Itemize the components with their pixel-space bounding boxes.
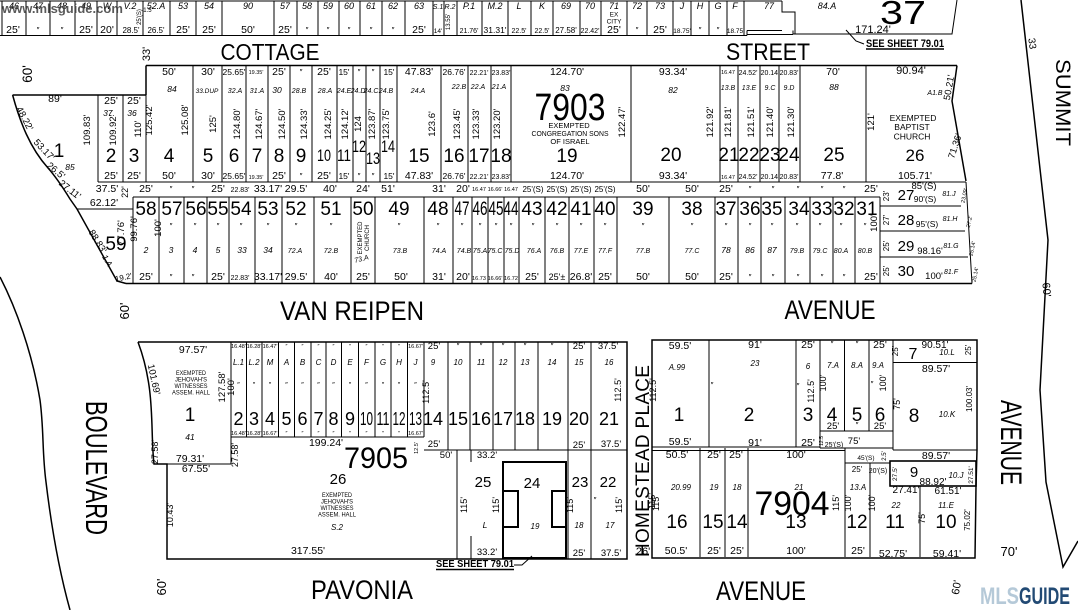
- svg-text:25': 25': [211, 271, 225, 283]
- svg-text:110': 110': [133, 120, 144, 137]
- svg-text:60': 60': [117, 303, 132, 320]
- svg-text:″: ″: [604, 222, 607, 231]
- svg-text:″: ″: [318, 344, 320, 350]
- svg-text:25': 25': [801, 339, 815, 351]
- svg-text:33.17': 33.17': [254, 271, 282, 283]
- svg-text:22: 22: [600, 474, 617, 491]
- svg-text:53: 53: [178, 1, 188, 11]
- svg-text:59.5': 59.5': [669, 340, 691, 352]
- svg-text:25': 25': [964, 344, 973, 355]
- svg-text:56: 56: [185, 199, 206, 220]
- svg-text:27.51': 27.51': [968, 466, 975, 484]
- svg-text:61.51': 61.51': [935, 486, 962, 497]
- svg-text:25': 25': [882, 265, 891, 276]
- svg-text:9.C: 9.C: [765, 85, 777, 92]
- svg-text:11: 11: [885, 512, 905, 533]
- svg-text:″: ″: [306, 26, 309, 35]
- svg-text:84: 84: [167, 84, 177, 94]
- svg-text:91': 91': [748, 437, 762, 449]
- svg-text:15': 15': [383, 67, 394, 77]
- svg-text:AVENUE: AVENUE: [716, 576, 806, 606]
- svg-text:16.66': 16.66': [488, 187, 503, 193]
- svg-text:25'±: 25'±: [549, 272, 566, 282]
- svg-text:115': 115': [651, 495, 661, 511]
- svg-text:25': 25': [882, 240, 891, 251]
- svg-text:G: G: [380, 358, 386, 367]
- svg-text:13: 13: [409, 409, 422, 429]
- svg-text:25': 25': [428, 341, 441, 352]
- svg-text:33: 33: [237, 245, 247, 255]
- svg-text:″: ″: [524, 342, 527, 351]
- svg-text:EXEMPTED: EXEMPTED: [358, 221, 364, 255]
- svg-text:30: 30: [272, 85, 282, 95]
- svg-text:48: 48: [427, 199, 448, 220]
- svg-text:1: 1: [54, 141, 65, 162]
- svg-text:54: 54: [204, 1, 214, 11]
- svg-text:″: ″: [358, 68, 361, 77]
- svg-text:3: 3: [803, 405, 814, 426]
- svg-text:18: 18: [575, 521, 584, 530]
- svg-text:J: J: [679, 1, 685, 11]
- svg-text:38: 38: [681, 199, 702, 220]
- svg-text:37.5': 37.5': [601, 548, 621, 559]
- svg-text:80.B: 80.B: [858, 248, 873, 255]
- svg-text:″: ″: [300, 68, 303, 77]
- svg-text:40': 40': [324, 271, 338, 283]
- svg-text:SUMMIT: SUMMIT: [1051, 59, 1074, 146]
- svg-text:199.24': 199.24': [309, 437, 343, 449]
- svg-text:20': 20': [456, 183, 470, 195]
- svg-text:23': 23': [882, 190, 891, 201]
- svg-text:18: 18: [733, 483, 742, 492]
- svg-text:24.A: 24.A: [410, 88, 426, 95]
- svg-text:29: 29: [898, 238, 915, 255]
- svg-text:EXEMPTED: EXEMPTED: [176, 371, 207, 377]
- svg-text:13.E: 13.E: [742, 85, 757, 92]
- svg-text:28.A: 28.A: [317, 88, 333, 95]
- svg-text:25': 25': [272, 66, 286, 78]
- svg-text:16.48': 16.48': [231, 344, 246, 350]
- svg-text:112.5': 112.5': [648, 378, 658, 402]
- svg-text:″: ″: [192, 273, 195, 282]
- svg-text:43: 43: [521, 199, 542, 220]
- svg-text:12.5: 12.5: [819, 436, 825, 446]
- svg-text:AVENUE: AVENUE: [994, 400, 1027, 485]
- svg-text:VAN REIPEN: VAN REIPEN: [280, 296, 424, 326]
- svg-text:20.14': 20.14': [761, 174, 780, 181]
- svg-text:JEHOVAH'S: JEHOVAH'S: [321, 500, 353, 506]
- svg-text:2.5': 2.5': [882, 451, 888, 461]
- svg-text:″: ″: [691, 222, 694, 231]
- svg-text:16: 16: [443, 146, 464, 167]
- svg-text:″: ″: [797, 382, 800, 391]
- svg-text:A: A: [283, 358, 289, 367]
- svg-text:86: 86: [745, 245, 755, 255]
- svg-text:″: ″: [349, 431, 351, 437]
- svg-text:74.B: 74.B: [457, 248, 472, 255]
- svg-text:24: 24: [778, 145, 800, 166]
- svg-text:33: 33: [1025, 37, 1038, 50]
- svg-text:15: 15: [702, 512, 723, 533]
- svg-text:85: 85: [65, 162, 75, 172]
- svg-text:125.08': 125.08': [180, 104, 191, 135]
- svg-text:124.70': 124.70': [550, 170, 584, 182]
- svg-text:70': 70': [826, 66, 840, 78]
- svg-text:115': 115': [491, 497, 501, 513]
- svg-text:124.67': 124.67': [254, 108, 265, 139]
- svg-text:25'(S): 25'(S): [137, 9, 143, 25]
- svg-text:26: 26: [330, 471, 347, 488]
- svg-text:17: 17: [468, 146, 489, 167]
- svg-text:20'(S): 20'(S): [869, 468, 887, 475]
- svg-text:25': 25': [525, 271, 539, 283]
- svg-text:33.DUP: 33.DUP: [196, 88, 219, 95]
- svg-text:25': 25': [104, 170, 118, 182]
- svg-text:30: 30: [898, 263, 915, 280]
- svg-text:″: ″: [382, 344, 384, 350]
- svg-text:″: ″: [398, 431, 400, 437]
- svg-text:P.1: P.1: [463, 1, 475, 11]
- svg-text:15: 15: [448, 409, 468, 429]
- svg-text:″: ″: [642, 222, 645, 231]
- svg-text:100': 100': [867, 494, 877, 511]
- svg-text:16.72: 16.72: [504, 276, 518, 282]
- svg-text:7.A: 7.A: [827, 361, 839, 370]
- svg-text:22.A: 22.A: [470, 84, 486, 91]
- svg-text:″: ″: [725, 222, 728, 231]
- svg-text:99.76': 99.76': [129, 216, 140, 242]
- svg-text:123.33': 123.33': [471, 108, 482, 139]
- svg-text:25': 25': [598, 271, 612, 283]
- svg-text:5: 5: [216, 245, 221, 255]
- svg-text:4: 4: [265, 409, 275, 429]
- svg-text:124.50': 124.50': [277, 108, 288, 139]
- svg-text:71: 71: [609, 1, 619, 11]
- svg-text:22.83': 22.83': [231, 187, 250, 194]
- svg-text:23.83': 23.83': [492, 70, 511, 77]
- svg-text:B: B: [300, 358, 306, 367]
- svg-text:L.2: L.2: [248, 358, 260, 367]
- svg-text:K: K: [539, 1, 546, 11]
- svg-text:3: 3: [169, 245, 174, 255]
- svg-text:28.B: 28.B: [291, 88, 307, 95]
- svg-text:59.41': 59.41': [933, 548, 961, 560]
- svg-text:77.B: 77.B: [636, 248, 651, 255]
- svg-text:31': 31': [432, 183, 446, 195]
- svg-text:9: 9: [431, 358, 436, 367]
- svg-text:18.75': 18.75': [673, 28, 691, 35]
- svg-text:16.28': 16.28': [247, 431, 262, 437]
- svg-text:″: ″: [856, 421, 859, 430]
- svg-text:20: 20: [569, 409, 589, 429]
- svg-text:″: ″: [327, 26, 330, 35]
- svg-text:H: H: [697, 1, 704, 11]
- svg-text:25': 25': [827, 421, 840, 432]
- svg-text:8.A: 8.A: [851, 361, 863, 370]
- svg-text:25': 25': [139, 183, 153, 195]
- svg-text:24.52': 24.52': [739, 70, 758, 77]
- svg-text:″: ″: [61, 26, 64, 35]
- svg-text:″: ″: [821, 185, 824, 194]
- svg-text:50': 50': [162, 170, 176, 182]
- svg-text:52: 52: [285, 199, 306, 220]
- svg-text:28: 28: [898, 212, 915, 229]
- svg-text:26.76': 26.76': [443, 67, 466, 77]
- svg-text:7905: 7905: [344, 442, 408, 475]
- svg-text:STREET: STREET: [726, 39, 810, 66]
- svg-text:25': 25': [211, 183, 225, 195]
- svg-text:115': 115': [459, 497, 469, 513]
- svg-text:29.5': 29.5': [285, 183, 307, 195]
- svg-text:25'(S): 25'(S): [570, 185, 591, 194]
- svg-text:33': 33': [141, 47, 153, 61]
- svg-text:″: ″: [372, 172, 375, 181]
- svg-text:C: C: [316, 358, 322, 367]
- svg-text:81.F: 81.F: [944, 269, 959, 276]
- svg-text:3: 3: [249, 409, 259, 429]
- svg-text:79.B: 79.B: [790, 248, 805, 255]
- svg-text:123.45': 123.45': [452, 108, 463, 139]
- svg-text:″: ″: [797, 273, 800, 282]
- svg-text:50: 50: [352, 199, 373, 220]
- svg-text:63: 63: [414, 1, 424, 11]
- svg-text:100': 100': [153, 219, 164, 237]
- svg-text:″: ″: [358, 172, 361, 181]
- svg-text:″: ″: [398, 344, 400, 350]
- svg-text:112.5': 112.5': [806, 379, 816, 403]
- svg-text:″: ″: [856, 340, 859, 349]
- svg-text:89.57': 89.57': [922, 363, 950, 375]
- svg-text:72.A: 72.A: [288, 248, 303, 255]
- svg-text:25': 25': [573, 548, 586, 559]
- svg-text:34: 34: [263, 245, 273, 255]
- svg-text:41: 41: [185, 432, 195, 442]
- svg-text:124.33': 124.33': [299, 108, 310, 139]
- svg-text:76.B: 76.B: [550, 248, 565, 255]
- svg-text:13.A: 13.A: [850, 483, 866, 492]
- svg-text:7: 7: [252, 146, 263, 167]
- svg-text:30': 30': [201, 66, 215, 78]
- svg-text:50': 50': [241, 24, 255, 36]
- svg-text:84.A: 84.A: [818, 1, 837, 11]
- svg-text:77.76': 77.76': [116, 220, 127, 246]
- svg-text:4: 4: [164, 146, 175, 167]
- svg-text:37.5': 37.5': [96, 183, 118, 195]
- svg-text:90.94': 90.94': [896, 65, 926, 77]
- svg-text:27': 27': [882, 214, 891, 225]
- svg-text:125': 125': [208, 115, 219, 133]
- svg-text:75.02': 75.02': [963, 509, 972, 531]
- svg-text:25': 25': [864, 183, 878, 195]
- svg-text:16.67': 16.67': [408, 431, 423, 437]
- svg-text:44: 44: [504, 199, 519, 220]
- svg-text:″: ″: [217, 222, 220, 231]
- svg-text:L.1: L.1: [233, 358, 244, 367]
- svg-text:5: 5: [281, 409, 291, 429]
- svg-text:80.A: 80.A: [834, 248, 849, 255]
- svg-text:1: 1: [674, 405, 685, 426]
- svg-text:50.5': 50.5': [666, 449, 688, 461]
- svg-text:24: 24: [524, 475, 541, 492]
- svg-text:109.83': 109.83': [82, 114, 93, 145]
- svg-text:15': 15': [383, 171, 394, 181]
- svg-text:25.65': 25.65': [223, 171, 246, 181]
- svg-text:″: ″: [831, 340, 834, 349]
- svg-text:25'(S): 25'(S): [594, 185, 615, 194]
- svg-text:25': 25': [891, 345, 900, 356]
- svg-text:″: ″: [749, 185, 752, 194]
- svg-text:″: ″: [330, 222, 333, 231]
- svg-text:17: 17: [606, 521, 615, 530]
- svg-text:54: 54: [230, 199, 252, 220]
- svg-text:26.5': 26.5': [147, 26, 165, 35]
- svg-text:15': 15': [338, 67, 349, 77]
- svg-text:″: ″: [457, 342, 460, 351]
- svg-text:25': 25': [356, 271, 370, 283]
- svg-text:F: F: [732, 1, 738, 11]
- svg-text:100': 100': [818, 374, 828, 391]
- svg-text:4: 4: [193, 245, 198, 255]
- svg-text:27.58': 27.58': [230, 443, 240, 468]
- svg-text:21.A: 21.A: [491, 84, 507, 91]
- svg-text:62.12': 62.12': [90, 197, 118, 209]
- svg-text:″: ″: [797, 185, 800, 194]
- svg-text:50': 50': [685, 183, 699, 195]
- svg-text:60': 60': [950, 579, 964, 595]
- svg-text:9: 9: [345, 409, 355, 429]
- svg-text:25'(S): 25'(S): [546, 185, 567, 194]
- svg-text:11: 11: [377, 409, 390, 429]
- svg-text:7: 7: [313, 409, 323, 429]
- svg-text:″: ″: [749, 273, 752, 282]
- svg-text:121.51': 121.51': [746, 106, 757, 137]
- svg-text:46: 46: [473, 199, 488, 220]
- svg-text:25': 25': [573, 440, 586, 451]
- svg-text:37: 37: [715, 199, 736, 220]
- svg-text:31': 31': [432, 271, 446, 283]
- svg-text:27.58': 27.58': [150, 440, 160, 465]
- svg-text:24.E: 24.E: [336, 88, 352, 95]
- svg-text:26.8': 26.8': [570, 271, 592, 283]
- svg-text:115': 115': [565, 497, 575, 513]
- svg-text:″: ″: [711, 381, 714, 390]
- svg-text:25': 25': [874, 421, 887, 432]
- svg-text:45'(S): 45'(S): [857, 455, 874, 462]
- svg-text:G: G: [714, 1, 721, 11]
- svg-text:″: ″: [796, 222, 799, 231]
- svg-text:97.57': 97.57': [179, 344, 207, 356]
- svg-text:60': 60': [20, 65, 35, 83]
- svg-text:22': 22': [120, 186, 130, 198]
- svg-text:51: 51: [320, 199, 341, 220]
- svg-text:″: ″: [479, 222, 482, 231]
- svg-text:″: ″: [594, 496, 597, 505]
- svg-text:2: 2: [744, 405, 755, 426]
- svg-text:24': 24': [356, 183, 370, 195]
- svg-text:75': 75': [917, 512, 927, 524]
- svg-text:76.A: 76.A: [527, 248, 542, 255]
- svg-text:31.31': 31.31': [484, 25, 507, 35]
- svg-text:ASSEM. HALL: ASSEM. HALL: [172, 391, 211, 397]
- svg-text:35: 35: [761, 199, 782, 220]
- svg-text:SEE SHEET 79.01: SEE SHEET 79.01: [436, 558, 514, 570]
- svg-text:10.43': 10.43': [165, 503, 175, 528]
- svg-text:121.81': 121.81': [723, 106, 734, 137]
- svg-text:72: 72: [632, 1, 642, 11]
- svg-text:73.B: 73.B: [393, 248, 408, 255]
- svg-text:17: 17: [493, 409, 513, 429]
- svg-text:″: ″: [580, 222, 583, 231]
- svg-text:22.21': 22.21': [470, 174, 489, 181]
- svg-text:20.83': 20.83': [780, 70, 799, 77]
- svg-text:11: 11: [337, 146, 351, 165]
- svg-text:93.34': 93.34': [659, 170, 687, 182]
- svg-text:33: 33: [811, 199, 832, 220]
- svg-text:22.5': 22.5': [535, 28, 550, 35]
- svg-text:12: 12: [393, 409, 406, 429]
- svg-text:122.47': 122.47': [617, 106, 628, 137]
- svg-text:″: ″: [366, 344, 368, 350]
- svg-text:121.30': 121.30': [786, 106, 797, 137]
- svg-text:23: 23: [750, 359, 760, 368]
- svg-text:13: 13: [366, 149, 380, 168]
- svg-text:75.D: 75.D: [505, 248, 520, 255]
- svg-text:123.20': 123.20': [492, 108, 503, 139]
- svg-text:81.H: 81.H: [943, 216, 959, 223]
- svg-text:www.mlsguide.com: www.mlsguide.com: [1, 1, 123, 16]
- svg-text:10.K: 10.K: [939, 410, 956, 419]
- svg-text:100': 100': [843, 494, 853, 511]
- svg-text:75': 75': [848, 436, 861, 447]
- svg-text:9: 9: [296, 146, 307, 167]
- svg-text:69: 69: [561, 1, 571, 11]
- svg-text:57: 57: [161, 199, 182, 220]
- svg-text:26': 26': [636, 546, 650, 558]
- svg-text:″: ″: [556, 222, 559, 231]
- svg-text:40': 40': [323, 183, 337, 195]
- svg-text:124: 124: [353, 116, 364, 132]
- svg-text:22.B: 22.B: [451, 84, 467, 91]
- svg-text:″: ″: [366, 431, 368, 437]
- svg-text:47.83': 47.83': [405, 170, 433, 182]
- svg-text:″: ″: [502, 342, 505, 351]
- svg-text:75.C: 75.C: [488, 248, 504, 255]
- svg-text:ASSEM. HALL: ASSEM. HALL: [318, 513, 357, 519]
- svg-text:″: ″: [636, 26, 639, 35]
- svg-text:″: ″: [392, 26, 395, 35]
- svg-text:25': 25': [719, 271, 733, 283]
- svg-text:H: H: [396, 358, 402, 367]
- svg-text:25': 25': [278, 24, 292, 36]
- svg-text:41: 41: [570, 199, 591, 220]
- svg-text:2: 2: [233, 409, 243, 429]
- svg-text:25': 25': [79, 24, 93, 36]
- svg-text:37.5': 37.5': [601, 439, 621, 450]
- svg-text:75.A: 75.A: [473, 248, 488, 255]
- svg-text:16: 16: [605, 358, 614, 367]
- svg-text:90: 90: [243, 1, 253, 11]
- svg-text:109.92': 109.92': [108, 114, 119, 145]
- svg-text:25': 25': [864, 271, 878, 283]
- svg-text:20: 20: [660, 145, 681, 166]
- svg-text:36: 36: [739, 199, 760, 220]
- svg-text:100': 100': [786, 545, 806, 557]
- svg-text:25': 25': [873, 339, 887, 351]
- svg-text:25': 25': [607, 24, 621, 36]
- svg-text:32: 32: [833, 199, 854, 220]
- svg-text:″: ″: [333, 344, 335, 350]
- svg-text:25: 25: [475, 474, 492, 491]
